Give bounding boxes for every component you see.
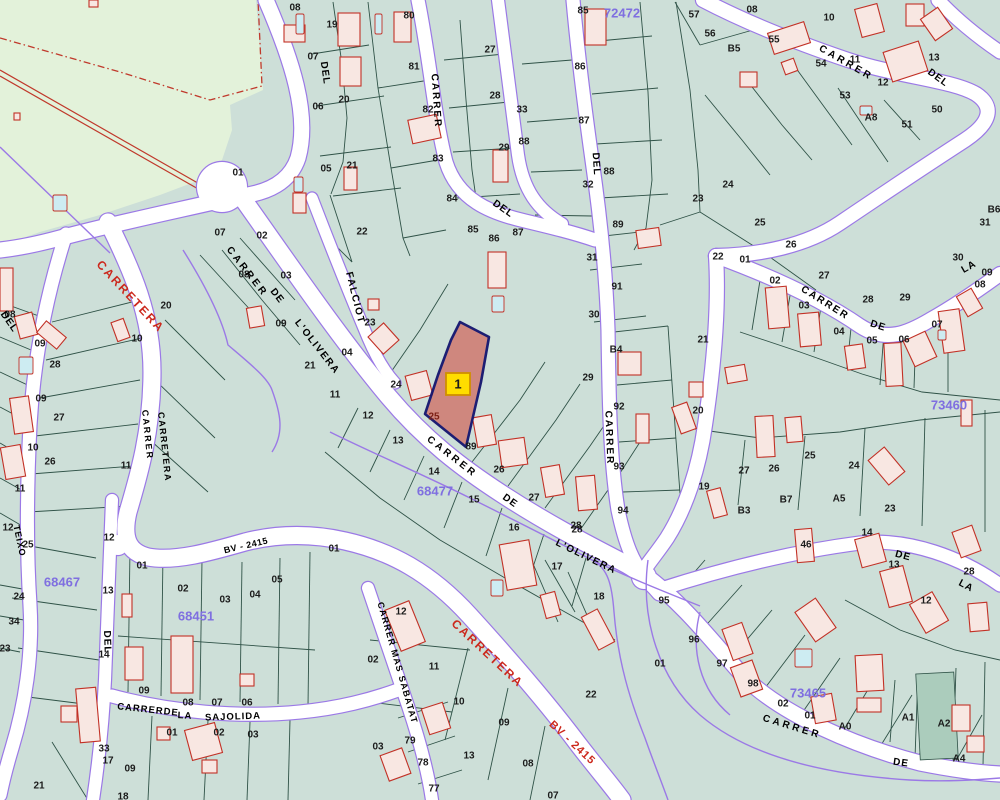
building [338, 13, 360, 46]
building [755, 416, 775, 458]
parcel-number: 80 [403, 11, 415, 22]
parcel-number: 12 [877, 78, 889, 89]
parcel-number: 26 [785, 240, 797, 251]
parcel-number: 09 [124, 764, 136, 775]
parcel-number: 24 [722, 180, 734, 191]
parcel-number: 26 [493, 465, 505, 476]
parcel-number: 20 [692, 406, 704, 417]
building [967, 736, 984, 752]
parcel-number: 86 [574, 62, 586, 73]
parcel-number: 19 [698, 482, 710, 493]
parcel-number: 23 [692, 194, 704, 205]
building [246, 306, 264, 328]
parcel-number: 34 [8, 617, 20, 628]
parcel-number: 97 [716, 659, 728, 670]
building [636, 414, 649, 443]
parcel-number: 28 [49, 360, 61, 371]
parcel-number: 12 [362, 411, 374, 422]
parcel-number: 07 [214, 228, 226, 239]
parcel-number: 87 [578, 116, 590, 127]
building [844, 344, 865, 370]
building [61, 706, 77, 722]
block-number: 73465 [790, 685, 826, 700]
parcel-number: 51 [901, 120, 913, 131]
building [89, 0, 98, 7]
parcel-number: 20 [160, 301, 172, 312]
parcel-number: 27 [818, 271, 830, 282]
parcel-number: 08 [522, 759, 534, 770]
parcel-number: 10 [131, 334, 143, 345]
parcel-number: 04 [249, 590, 261, 601]
building [340, 57, 361, 86]
cadastral-map[interactable]: 2510819800706052081828384858687212201020… [0, 0, 1000, 800]
parcel-number: 02 [213, 728, 225, 739]
pool [795, 649, 812, 667]
parcel-number: B7 [780, 495, 793, 506]
parcel-number: 01 [232, 168, 244, 179]
parcel-number: 89 [612, 220, 624, 231]
parcel-number: A4 [953, 754, 966, 765]
street-name-label: SAJOLIDA [205, 711, 261, 724]
parcel-number: 12 [103, 533, 115, 544]
parcel-number: 31 [586, 253, 598, 264]
parcel-number: 03 [247, 730, 259, 741]
building [576, 475, 598, 511]
street-name-label: CARRER [602, 410, 615, 465]
parcel-number: 09 [981, 268, 993, 279]
parcel-number: 01 [166, 728, 178, 739]
pool [492, 296, 504, 312]
parcel-number: 86 [488, 234, 500, 245]
parcel-number: A1 [902, 713, 915, 724]
parcel-number: 10 [27, 443, 39, 454]
parcel-number: 11 [121, 461, 132, 472]
parcel-number: 95 [658, 596, 670, 607]
block-number: 68467 [44, 574, 80, 589]
parcel-number: 05 [271, 575, 283, 586]
building [125, 647, 143, 680]
parcel-number: A8 [865, 113, 878, 124]
parcel-number: A5 [833, 494, 846, 505]
parcel-number: 08 [182, 698, 194, 709]
parcel-number: 05 [320, 164, 332, 175]
parcel-number: 03 [280, 271, 292, 282]
parcel-number: 81 [408, 62, 420, 73]
parcel-number: 10 [823, 13, 835, 24]
parcel-number: 18 [117, 792, 129, 800]
parcel-number: 01 [654, 659, 666, 670]
building [171, 636, 193, 693]
parcel-number: 50 [931, 105, 943, 116]
parcel-number: 06 [312, 102, 324, 113]
parcel-number: 24 [848, 461, 860, 472]
parcel-number: 24 [13, 592, 25, 603]
parcel-number: 02 [769, 276, 781, 287]
parcel-number: 11 [429, 662, 440, 673]
parcel-number: 03 [798, 301, 810, 312]
highlighted-parcel-number: 25 [428, 412, 440, 423]
parcel-number: 03 [372, 742, 384, 753]
block-number: 73460 [931, 397, 967, 412]
parcel-number: 21 [33, 781, 45, 792]
parcel-number: 53 [839, 91, 851, 102]
parcel-number: 23 [0, 644, 11, 655]
parcel-number: B3 [738, 506, 751, 517]
parcel-number: 83 [432, 154, 444, 165]
building [785, 416, 803, 442]
parcel-number: 06 [898, 335, 910, 346]
parcel-number: 02 [777, 699, 789, 710]
parcel-number: 28 [862, 295, 874, 306]
parcel-1-badge-label: 1 [454, 376, 461, 391]
parcel-number: 94 [617, 506, 629, 517]
parcel-number: 02 [367, 655, 379, 666]
parcel-number: 07 [307, 52, 319, 63]
parcel-number: 21 [304, 361, 316, 372]
parcel-number: 03 [219, 595, 231, 606]
parcel-number: 13 [392, 436, 404, 447]
parcel-number: 01 [136, 561, 148, 572]
parcel-number: 25 [804, 451, 816, 462]
parcel-number: 09 [275, 319, 287, 330]
parcel-number: 79 [404, 736, 416, 747]
parcel-number: 14 [428, 467, 440, 478]
parcel-number: 31 [979, 218, 991, 229]
building [968, 602, 989, 632]
parcel-number: 14 [861, 528, 873, 539]
parcel-number: 01 [739, 255, 751, 266]
parcel-number: 13 [463, 751, 475, 762]
parcel-number: 19 [326, 20, 338, 31]
pool [375, 14, 382, 34]
parcel-number: 09 [498, 718, 510, 729]
parcel-number: B5 [728, 44, 741, 55]
parcel-number: 13 [102, 586, 114, 597]
street-name-label: DE [892, 757, 909, 770]
building [855, 654, 884, 691]
pool [53, 195, 67, 211]
parcel-number: 09 [35, 394, 47, 405]
parcel-number: 17 [102, 756, 114, 767]
building [725, 364, 747, 383]
building [488, 252, 506, 288]
parcel-number: 13 [928, 53, 940, 64]
building [765, 286, 789, 329]
block-number: 72472 [604, 5, 640, 20]
parcel-number: 87 [512, 228, 524, 239]
parcel-number: 27 [53, 413, 65, 424]
parcel-number: 57 [688, 10, 700, 21]
parcel-number: 18 [593, 592, 605, 603]
building [0, 268, 13, 311]
parcel-number: 21 [346, 161, 358, 172]
parcel-number: 21 [697, 335, 709, 346]
parcel-number: 11 [15, 484, 26, 495]
building [493, 150, 508, 182]
building [293, 193, 306, 213]
parcel-number: 05 [866, 336, 878, 347]
parcel-number: 13 [888, 560, 900, 571]
parcel-number: 02 [177, 584, 189, 595]
parcel-number: 30 [952, 253, 964, 264]
parcel-number: 96 [688, 635, 700, 646]
pool [938, 330, 946, 340]
parcel-number: 07 [931, 320, 943, 331]
parcel-number: 01 [328, 544, 340, 555]
parcel-number: 09 [34, 339, 46, 350]
building [368, 299, 379, 310]
building [952, 705, 970, 731]
parcel-number: 27 [738, 466, 750, 477]
parcel-number: 06 [241, 698, 253, 709]
parcel-number: 02 [256, 231, 268, 242]
parcel-number: 56 [704, 29, 716, 40]
parcel-number: 28 [570, 521, 582, 532]
parcel-number: 04 [341, 348, 353, 359]
building [202, 760, 217, 773]
parcel-number: 22 [585, 690, 597, 701]
building [14, 113, 20, 120]
parcel-number: 22 [712, 252, 724, 263]
parcel-number: 98 [747, 679, 759, 690]
parcel-number: 15 [468, 495, 480, 506]
parcel-number: 77 [428, 784, 440, 795]
street-name-label: LA [177, 710, 192, 722]
pool [294, 177, 303, 192]
parcel-number: 92 [613, 402, 625, 413]
parcel-number: 25 [754, 218, 766, 229]
parcel-number: 78 [417, 758, 429, 769]
building [740, 72, 757, 87]
building [689, 382, 703, 397]
building [122, 594, 132, 617]
parcel-number: 46 [800, 540, 812, 551]
building [240, 674, 254, 686]
parcel-number: 23 [884, 504, 896, 515]
parcel-number: 32 [582, 180, 594, 191]
building [76, 687, 101, 743]
building [636, 227, 661, 248]
parcel-number: 07 [211, 698, 223, 709]
parcel-number: 33 [98, 744, 110, 755]
pool [491, 580, 503, 596]
parcel-number: 33 [516, 105, 528, 116]
parcel-number: 16 [508, 523, 520, 534]
parcel-number: 08 [746, 5, 758, 16]
parcel-number: 20 [338, 95, 350, 106]
parcel-number: 27 [484, 45, 496, 56]
parcel-number: 28 [963, 567, 975, 578]
parcel-number: A2 [938, 719, 951, 730]
parcel-number: B6 [988, 205, 1000, 216]
cadastral-map-canvas[interactable]: 2510819800706052081828384858687212201020… [0, 0, 1000, 800]
parcel-number: 01 [804, 711, 816, 722]
parcel-number: 29 [498, 143, 510, 154]
parcel-number: 91 [611, 282, 623, 293]
block-number: 68451 [178, 608, 214, 623]
street-name-label: DEL [590, 152, 603, 176]
parcel-number: 84 [446, 194, 458, 205]
parcel-number: 10 [453, 697, 465, 708]
parcel-number: 89 [465, 442, 477, 453]
parcel-number: 28 [489, 91, 501, 102]
pool [19, 357, 33, 374]
parcel-number: 26 [768, 464, 780, 475]
building [884, 343, 903, 387]
parcel-number: 54 [815, 59, 827, 70]
parcel-number: B4 [610, 345, 623, 356]
parcel-number: 07 [547, 791, 559, 800]
parcel-number: 22 [356, 227, 368, 238]
parcel-number: 85 [467, 225, 479, 236]
parcel-number: 30 [588, 310, 600, 321]
parcel-number: 88 [603, 167, 615, 178]
parcel-number: 88 [518, 137, 530, 148]
parcel-number: A0 [839, 722, 852, 733]
parcel-number: 11 [330, 390, 341, 401]
parcel-number: 17 [551, 562, 563, 573]
street-name-label: DEL [101, 630, 113, 653]
building [857, 698, 881, 712]
parcel-number: 27 [528, 493, 540, 504]
block-number: 68477 [417, 483, 453, 498]
parcel-number: 24 [390, 380, 402, 391]
parcel-number: 08 [974, 280, 986, 291]
parcel-number: 55 [768, 35, 780, 46]
parcel-number: 08 [289, 3, 301, 14]
building [498, 437, 528, 467]
building [906, 4, 924, 26]
parcel-number: 85 [577, 6, 589, 17]
parcel-number: 12 [395, 607, 407, 618]
parcel-number: 29 [899, 293, 911, 304]
pool [296, 14, 304, 34]
parcel-number: 26 [44, 457, 56, 468]
parcel-number: 09 [138, 686, 150, 697]
parcel-number: 12 [920, 596, 932, 607]
parcel-number: 04 [833, 327, 845, 338]
parcel-number: 29 [582, 373, 594, 384]
building [798, 312, 822, 347]
road-junction [632, 565, 656, 589]
